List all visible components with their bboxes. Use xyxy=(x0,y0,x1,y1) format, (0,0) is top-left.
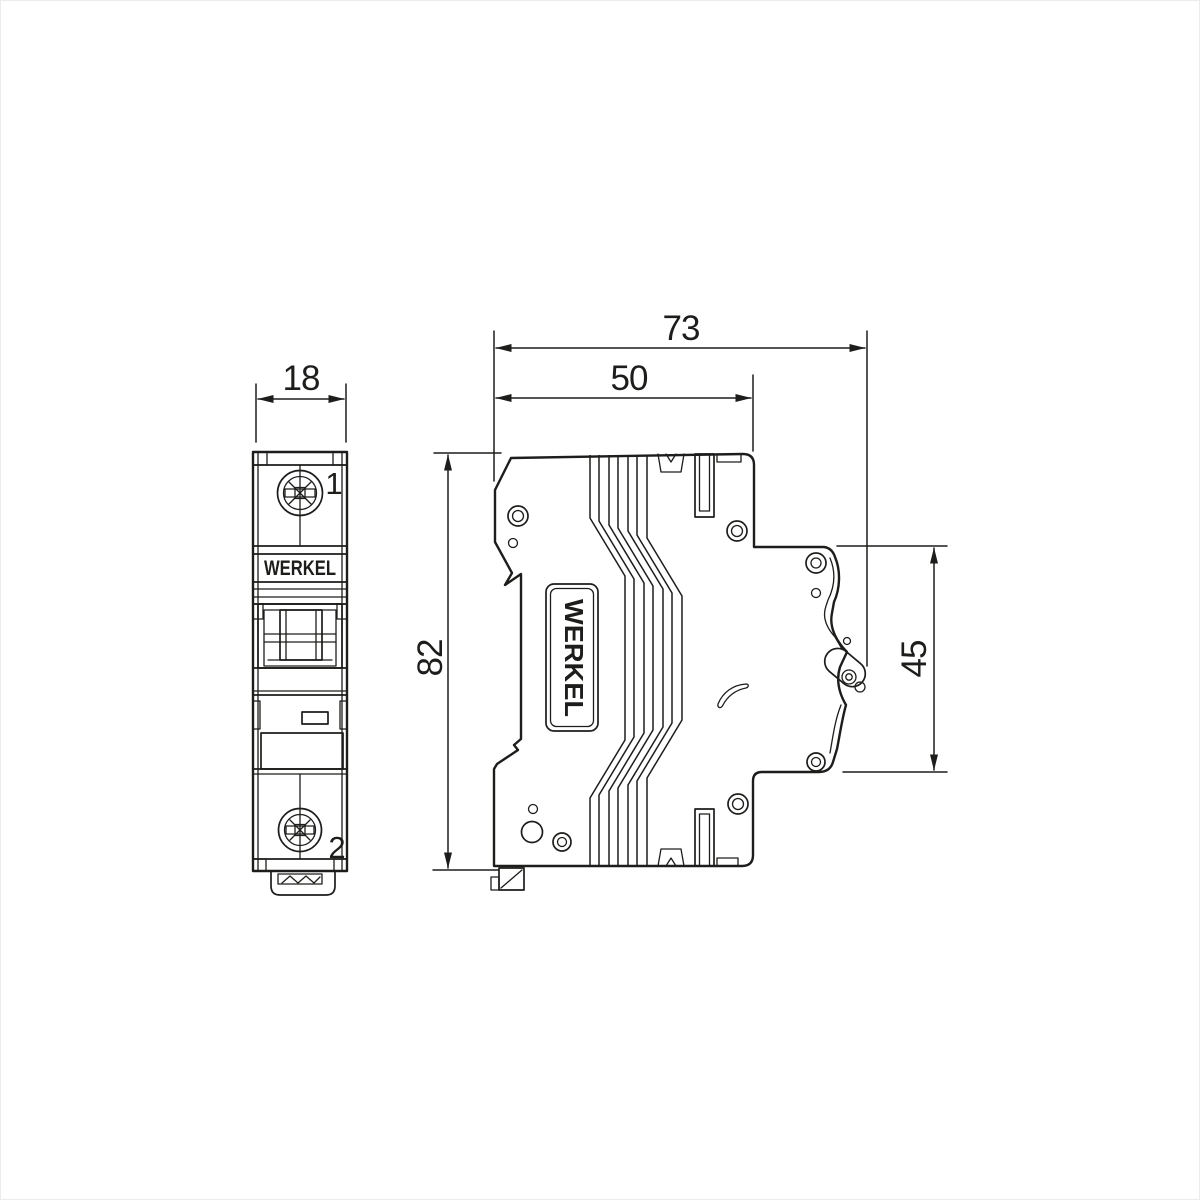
din-slider xyxy=(491,868,524,890)
svg-text:18: 18 xyxy=(283,359,320,398)
side-brand-label: WERKEL xyxy=(559,599,589,717)
side-brand-plate: WERKEL xyxy=(546,584,598,731)
technical-drawing-canvas: 1 WERKEL xyxy=(0,0,1200,1200)
dim-din-face-height: 45 xyxy=(837,546,947,772)
din-clip-front xyxy=(271,871,335,895)
terminal-label-1: 1 xyxy=(325,466,342,501)
breaker-dimension-drawing: 1 WERKEL xyxy=(1,1,1200,1201)
terminal-screw-bottom xyxy=(279,809,322,852)
svg-text:50: 50 xyxy=(611,359,648,398)
dim-height: 82 xyxy=(411,453,501,870)
toggle-switch xyxy=(253,604,347,668)
front-brand-label: WERKEL xyxy=(264,557,336,580)
side-view: WERKEL xyxy=(491,454,871,890)
svg-text:73: 73 xyxy=(663,309,700,348)
din-latch xyxy=(819,643,870,692)
marking-window xyxy=(302,712,328,724)
front-view: 1 WERKEL xyxy=(253,452,347,895)
case-slit xyxy=(718,684,748,708)
dim-upper-depth: 50 xyxy=(496,359,753,451)
dimensions: 18 73 50 82 45 xyxy=(256,309,947,870)
rib-lines xyxy=(590,455,682,866)
svg-text:82: 82 xyxy=(411,640,450,677)
svg-text:45: 45 xyxy=(895,641,934,678)
dim-front-width: 18 xyxy=(256,359,346,442)
